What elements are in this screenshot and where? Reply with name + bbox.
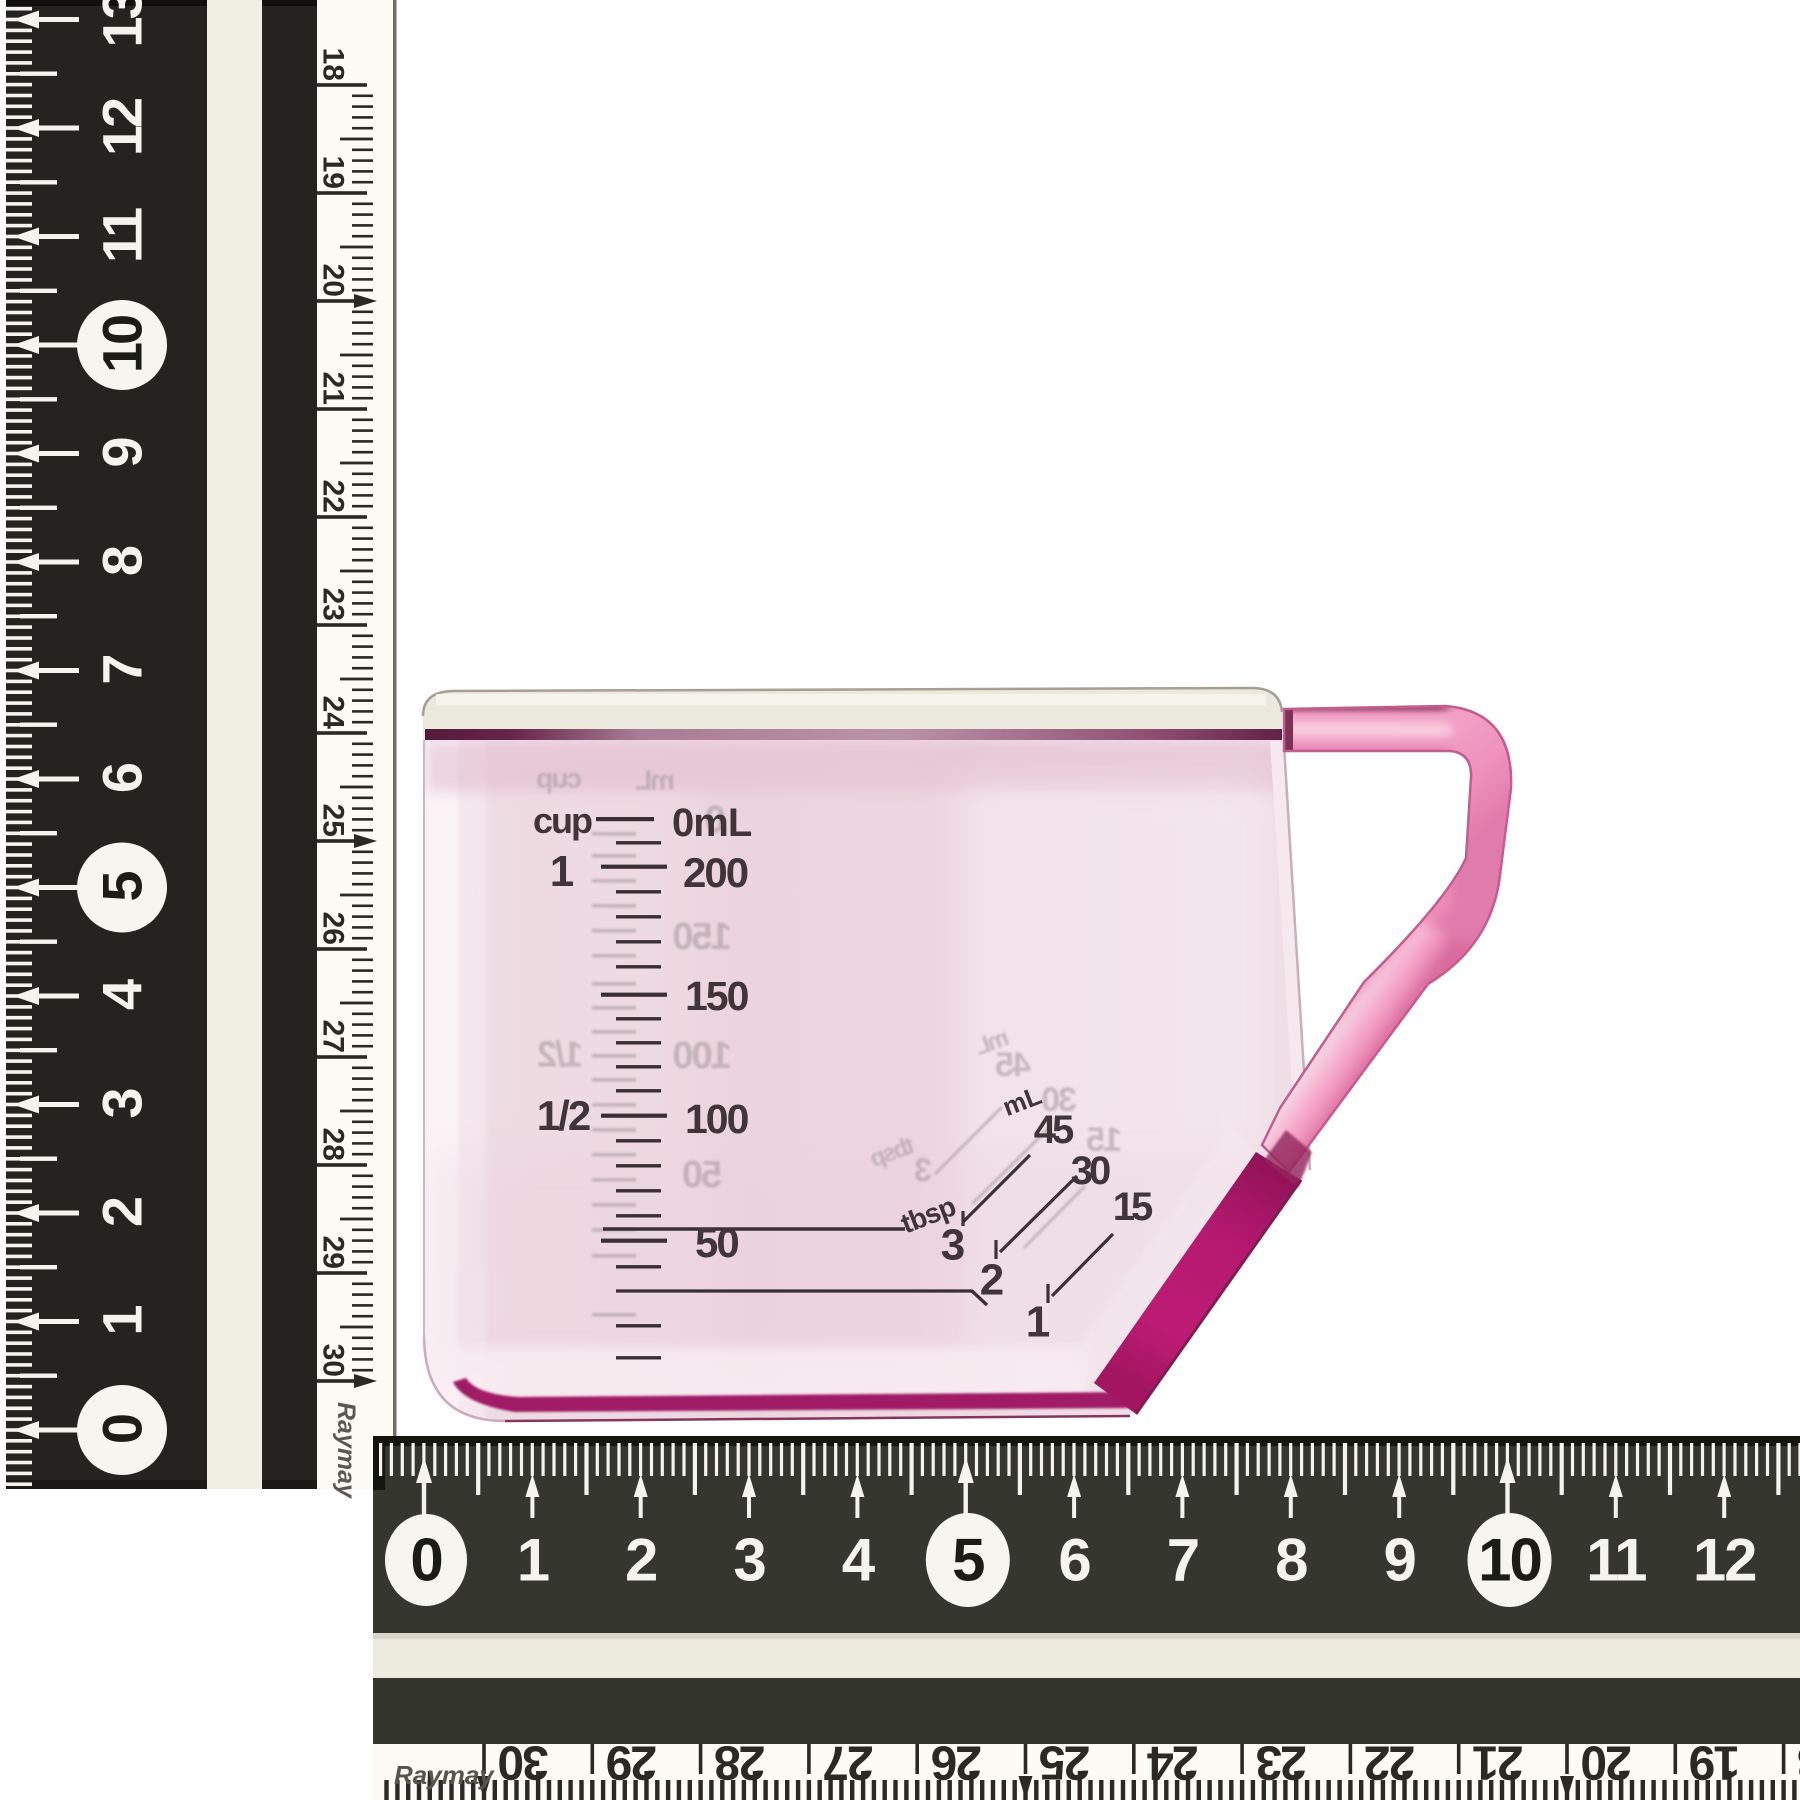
- svg-text:6: 6: [91, 763, 154, 793]
- svg-text:1/2: 1/2: [537, 1092, 590, 1139]
- svg-text:150: 150: [685, 973, 749, 1019]
- svg-text:3: 3: [941, 1221, 965, 1270]
- svg-text:28: 28: [317, 1128, 350, 1161]
- svg-text:22: 22: [317, 480, 350, 513]
- svg-text:Raymay: Raymay: [394, 1760, 495, 1790]
- svg-text:0: 0: [91, 1415, 154, 1444]
- svg-text:12: 12: [91, 99, 154, 156]
- svg-text:2: 2: [980, 1256, 1004, 1305]
- svg-text:18: 18: [317, 48, 350, 81]
- svg-text:28: 28: [715, 1736, 766, 1789]
- svg-text:11: 11: [91, 208, 154, 263]
- svg-text:2: 2: [91, 1198, 154, 1227]
- svg-text:5: 5: [91, 872, 154, 902]
- svg-text:2: 2: [625, 1527, 656, 1594]
- svg-text:cup: cup: [533, 800, 592, 841]
- svg-text:30: 30: [317, 1344, 350, 1377]
- svg-text:1: 1: [550, 847, 574, 896]
- svg-text:1/2: 1/2: [538, 1034, 583, 1075]
- svg-text:27: 27: [824, 1736, 874, 1789]
- svg-text:4: 4: [842, 1527, 876, 1594]
- svg-text:21: 21: [317, 372, 350, 405]
- svg-text:100: 100: [673, 1035, 731, 1077]
- svg-text:0mL: 0mL: [672, 801, 752, 845]
- svg-text:23: 23: [317, 588, 350, 621]
- svg-text:15: 15: [1113, 1185, 1153, 1229]
- svg-text:0: 0: [410, 1527, 441, 1594]
- svg-text:50: 50: [695, 1219, 738, 1266]
- svg-text:1: 1: [91, 1306, 154, 1336]
- svg-text:1: 1: [1026, 1298, 1050, 1347]
- svg-text:45: 45: [996, 1046, 1031, 1084]
- svg-text:7: 7: [91, 656, 154, 685]
- svg-text:24: 24: [1147, 1736, 1199, 1789]
- svg-text:12: 12: [1693, 1527, 1756, 1594]
- svg-text:8: 8: [91, 546, 154, 576]
- svg-text:10: 10: [1478, 1527, 1541, 1594]
- svg-text:30: 30: [1071, 1149, 1110, 1193]
- svg-text:19: 19: [1690, 1736, 1740, 1789]
- svg-text:23: 23: [1257, 1736, 1307, 1789]
- svg-text:13: 13: [91, 0, 154, 48]
- svg-text:21: 21: [1473, 1736, 1524, 1789]
- svg-text:mL: mL: [635, 765, 675, 796]
- svg-text:5: 5: [952, 1527, 984, 1594]
- svg-text:25: 25: [317, 804, 350, 837]
- svg-text:8: 8: [1275, 1527, 1307, 1594]
- svg-text:29: 29: [607, 1736, 657, 1789]
- svg-text:29: 29: [317, 1236, 350, 1269]
- svg-text:26: 26: [317, 912, 350, 945]
- svg-text:20: 20: [1582, 1736, 1632, 1789]
- svg-text:Raymay: Raymay: [332, 1402, 360, 1499]
- svg-text:22: 22: [1365, 1736, 1415, 1789]
- svg-text:25: 25: [1040, 1736, 1091, 1789]
- svg-text:30: 30: [499, 1736, 549, 1789]
- svg-text:10: 10: [91, 316, 154, 373]
- svg-text:11: 11: [1586, 1527, 1646, 1594]
- svg-text:24: 24: [317, 696, 350, 730]
- svg-text:100: 100: [685, 1096, 749, 1142]
- svg-text:27: 27: [317, 1020, 350, 1053]
- svg-text:45: 45: [1034, 1108, 1074, 1152]
- svg-text:200: 200: [683, 849, 748, 896]
- svg-text:20: 20: [317, 264, 350, 297]
- svg-text:9: 9: [1384, 1527, 1416, 1594]
- svg-text:9: 9: [91, 438, 154, 468]
- svg-text:50: 50: [683, 1154, 722, 1196]
- svg-text:3: 3: [733, 1527, 765, 1594]
- svg-text:150: 150: [673, 916, 731, 958]
- svg-text:26: 26: [932, 1736, 982, 1789]
- svg-text:1: 1: [517, 1527, 549, 1594]
- svg-text:19: 19: [317, 156, 350, 189]
- svg-text:7: 7: [1167, 1527, 1198, 1594]
- svg-text:3: 3: [91, 1089, 154, 1119]
- svg-text:4: 4: [91, 979, 154, 1010]
- svg-text:6: 6: [1058, 1527, 1090, 1594]
- svg-text:cup: cup: [537, 763, 582, 794]
